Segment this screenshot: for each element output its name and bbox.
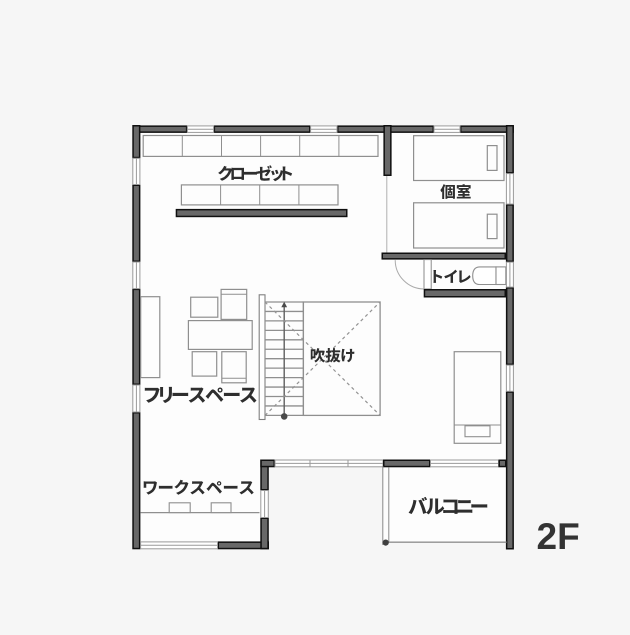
svg-text:2F: 2F [537, 516, 580, 557]
